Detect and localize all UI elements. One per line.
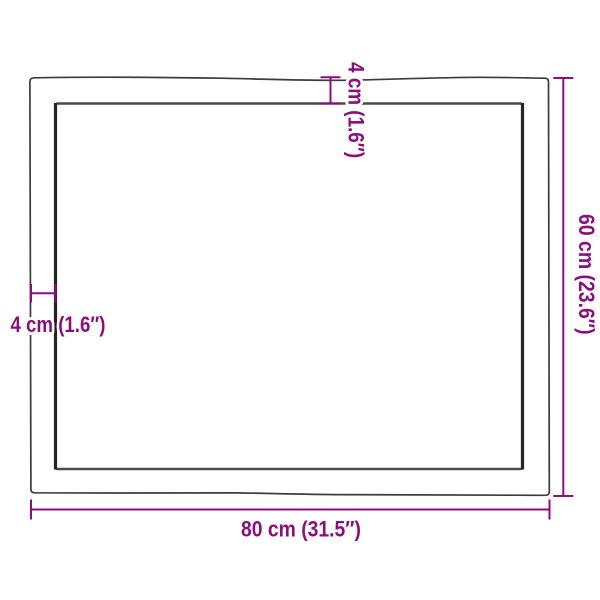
svg-text:4 cm (1.6″): 4 cm (1.6″) [11,312,106,337]
svg-text:60 cm (23.6″): 60 cm (23.6″) [574,214,599,335]
svg-text:80 cm (31.5″): 80 cm (31.5″) [241,517,361,542]
svg-text:4 cm (1.6″): 4 cm (1.6″) [344,62,369,158]
